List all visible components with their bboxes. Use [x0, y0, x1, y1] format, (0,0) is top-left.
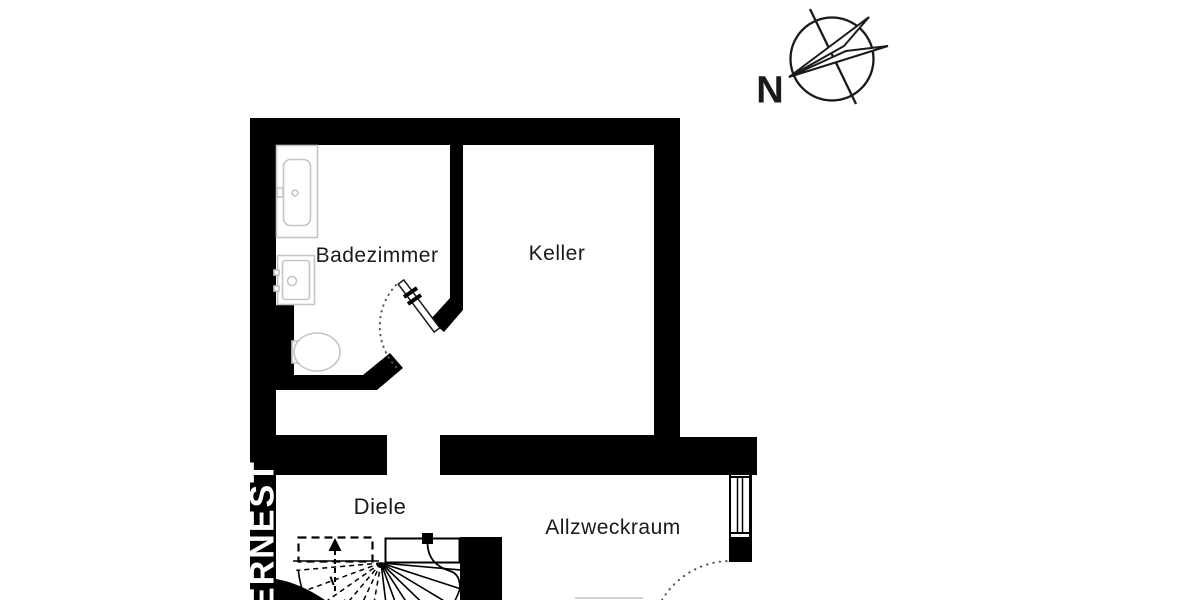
wall-window-pier	[729, 537, 752, 562]
wall-stair-side	[460, 537, 502, 600]
wall-top	[250, 118, 680, 145]
room-label-diele: Diele	[354, 494, 407, 520]
stair-newel-post	[422, 533, 433, 544]
compass-rose	[789, 9, 888, 104]
stair-treads-solid	[381, 563, 466, 600]
wall-divider-badezimmer-keller	[430, 145, 463, 332]
door-swing-arc	[380, 285, 399, 370]
bathtub-drain	[292, 190, 298, 196]
washbasin-drain	[288, 277, 297, 286]
stair-tick	[331, 577, 334, 585]
floorplan-canvas: Badezimmer Keller Diele Allzweckraum N E…	[0, 0, 1200, 600]
wall-middle-right	[440, 435, 680, 475]
washbasin	[274, 256, 315, 305]
bathroom-door	[380, 280, 440, 370]
compass-north-label: N	[756, 70, 783, 113]
room-label-allzweckraum: Allzweckraum	[545, 516, 681, 540]
stair-arrow-head	[329, 538, 342, 551]
washbasin-tap	[274, 286, 279, 291]
toilet	[292, 333, 340, 371]
compass-needle-upper-blade	[789, 17, 869, 77]
wall-middle-extension	[654, 437, 757, 475]
door-leaf	[398, 280, 440, 332]
room-label-badezimmer: Badezimmer	[316, 244, 439, 268]
watermark-text: ERNEST	[244, 460, 283, 600]
bathtub-tap	[277, 188, 283, 197]
spiral-staircase	[293, 533, 466, 600]
room-label-keller: Keller	[529, 242, 586, 266]
washbasin-tap	[274, 270, 279, 275]
window-right	[729, 475, 752, 537]
toilet-bowl	[294, 333, 340, 371]
floorplan-drawing	[0, 0, 1200, 600]
allzweckraum-door-swing-arc	[662, 561, 731, 600]
wall-right	[654, 118, 680, 438]
bathtub	[277, 146, 318, 238]
